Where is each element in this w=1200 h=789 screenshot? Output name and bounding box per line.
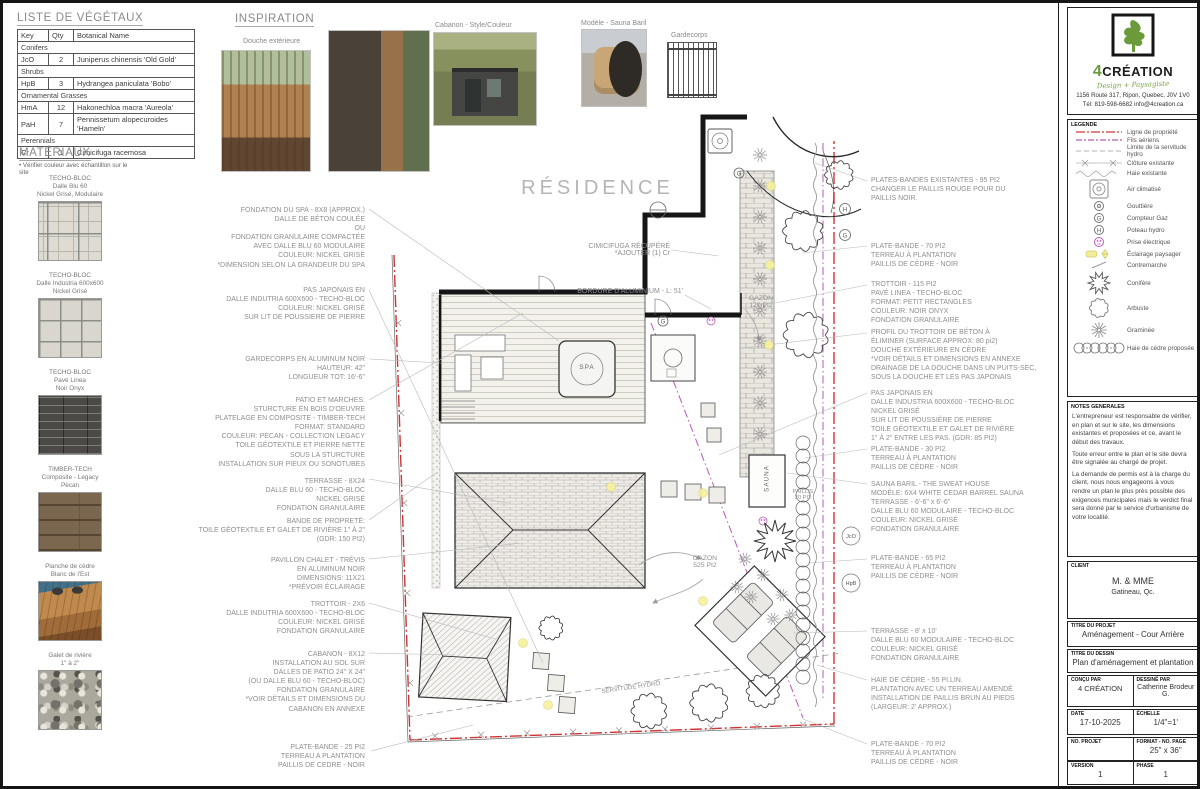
plant-list-table: Key Qty Botanical Name ConifersJcO2Junip…	[17, 29, 195, 159]
legend-label: Ligne de propriété	[1127, 129, 1178, 136]
project-no-cell: NO. PROJET	[1068, 738, 1133, 760]
grid600-swatch	[38, 298, 102, 358]
company-address-line: 1156 Route 317, Ripon, Quebec, J0V 1V0	[1068, 92, 1198, 101]
legend-item: Limite de la servitude hydro	[1068, 144, 1198, 158]
general-note: L'entrepreneur est responsable de vérifi…	[1072, 413, 1194, 448]
notes-list: L'entrepreneur est responsable de vérifi…	[1068, 413, 1198, 523]
svg-text:HpB: HpB	[846, 581, 857, 587]
residence-label: RÉSIDENCE	[515, 177, 680, 200]
drawn-by-value: Catherine Brodeur G.	[1134, 684, 1199, 698]
legend-item: Haie existante	[1068, 168, 1198, 178]
material-label: Galet de rivière 1" à 2"	[17, 652, 123, 668]
plant-group-row: Ornamental Grasses	[18, 90, 195, 102]
sauna-label: SAUNA	[764, 456, 771, 502]
legend-label: Haie existante	[1127, 170, 1167, 177]
legend-label: Conifère	[1127, 280, 1151, 287]
inspiration-title: INSPIRATION	[235, 13, 314, 27]
plant-list-title: LISTE DE VÉGÉTAUX	[17, 12, 143, 26]
drawn-by-label: DESSINÉ PAR	[1134, 676, 1199, 684]
legend-label: Limite de la servitude hydro	[1127, 144, 1195, 158]
drawn-by-cell: DESSINÉ PAR Catherine Brodeur G.	[1133, 676, 1199, 706]
plan-annotation-right: HAIE DE CÈDRE - 55 PI.LIN. PLANTATION AV…	[871, 676, 1059, 712]
legend-item: GCompteur Gaz	[1068, 212, 1198, 224]
svg-text:H: H	[1097, 228, 1101, 234]
linea-swatch	[38, 395, 102, 455]
legend-label: Fils aériens	[1127, 137, 1159, 144]
plan-annotation-left: BANDE DE PROPRETÉ: TOILE GÉOTEXTILE ET G…	[123, 517, 365, 544]
drawing-title-block: TITRE DU DESSIN Plan d'aménagement et pl…	[1067, 649, 1199, 673]
svg-text:G: G	[737, 172, 742, 178]
electrical-outlet-icon	[1071, 236, 1127, 248]
legend-item: Graminée	[1068, 320, 1198, 340]
col-key: Key	[18, 30, 49, 42]
scale-cell: ÉCHELLE 1/4"=1'	[1133, 710, 1199, 734]
client-city: Gatineau, Qc.	[1068, 589, 1198, 596]
company-block: 4CRÉATION Design + Paysagiste 1156 Route…	[1067, 7, 1199, 115]
plan-annotation-left: PATIO ET MARCHES: STURCTURE EN BOIS D'OE…	[123, 396, 365, 469]
plan-annotation-right: TERRASSE - 8' x 10' DALLE BLU 60 MODULAI…	[871, 627, 1059, 663]
legend-item: Conifère	[1068, 270, 1198, 296]
plant-row: HmA12Hakonechloa macra 'Aureola'	[18, 102, 195, 114]
client-label: CLIENT	[1068, 562, 1198, 570]
shed-illustration	[452, 68, 517, 116]
inspiration-image-railing	[667, 42, 717, 98]
notes-block: NOTES GENERALES L'entrepreneur est respo…	[1067, 401, 1199, 557]
legend-title: LEGENDE	[1068, 120, 1198, 128]
plan-annotation-right: SAUNA BARIL - THE SWEAT HOUSE MODÈLE: 6X…	[871, 480, 1059, 535]
project-title-block: TITRE DU PROJET Aménagement - Cour Arriè…	[1067, 621, 1199, 647]
hydro-pole-icon: H	[1071, 224, 1127, 236]
legend-item: Clôture existante	[1068, 158, 1198, 168]
inspiration-photo-sauna	[581, 29, 647, 107]
plan-annotation-right: PLATE-BANDE - 70 PI2 TERREAU À PLANTATIO…	[871, 740, 1059, 767]
materials-list: TECHO-BLOC Dalle Blu 60 Nickel Grisé, Mo…	[17, 175, 123, 741]
scale-label: ÉCHELLE	[1134, 710, 1199, 718]
mulch-label: PAILLIS 20 PI2	[783, 489, 823, 501]
company-address: 1156 Route 317, Ripon, Quebec, J0V 1V0 T…	[1068, 92, 1198, 109]
date-value: 17-10-2025	[1068, 718, 1133, 727]
material-label: TIMBER-TECH Composite - Legacy Pecan	[17, 466, 123, 490]
drawing-sheet: GG HG JcOHpB LISTE DE VÉGÉTAUX Key Qty	[0, 0, 1200, 789]
plant-table-header: Key Qty Botanical Name	[18, 30, 195, 42]
tree-icon	[1124, 20, 1145, 52]
plan-annotation-right: PLATES-BANDES EXISTANTES - 95 PI2 CHANGE…	[871, 176, 1059, 203]
modular-swatch	[38, 201, 102, 261]
general-note: La demande de permis est à la charge du …	[1072, 471, 1194, 523]
plan-annotation-right: PAS JAPONAIS EN DALLE INDUSTRIA 600X600 …	[871, 389, 1059, 444]
barrel-sauna-face	[609, 41, 642, 97]
cedar-swatch	[38, 581, 102, 641]
projectno-format-block: NO. PROJET FORMAT - NO. PAGE 25" x 36"	[1067, 737, 1199, 761]
material-label: TECHO-BLOC Dalle Blu 60 Nickel Grisé, Mo…	[17, 175, 123, 199]
designed-by-value: 4 CRÉATION	[1068, 684, 1133, 693]
legend-label: Air climatisé	[1127, 186, 1161, 193]
plan-annotation-left: PLATE-BANDE - 25 PI2 TERREAU A PLANTATIO…	[123, 743, 365, 770]
legend-label: Éclairage paysager	[1127, 251, 1181, 258]
legend-item: Fils aériens	[1068, 136, 1198, 144]
format-cell: FORMAT - NO. PAGE 25" x 36"	[1133, 738, 1199, 760]
designed-by-label: CONÇU PAR	[1068, 676, 1133, 684]
client-block: CLIENT M. & MME Gatineau, Qc.	[1067, 561, 1199, 619]
plan-annotation-left: PAVILLON CHALET - TRÉVIS EN ALUMINUM NOI…	[123, 556, 365, 592]
stair-riser-icon	[1071, 260, 1127, 270]
legend-label: Haie de cèdre proposée	[1127, 345, 1194, 352]
landscape-light-icon	[1071, 248, 1127, 260]
spa-label: SPA	[569, 364, 605, 371]
materials-note: • Vérifier couleur avec échantillon sur …	[19, 162, 129, 176]
plant-row: JcO2Juniperus chinensis 'Old Gold'	[18, 54, 195, 66]
inspiration-photo-shower-2	[328, 30, 430, 172]
version-label: VERSION	[1068, 762, 1133, 770]
proposed-cedar-hedge-icon	[1071, 340, 1127, 356]
lawn-small-label: GAZON 120 PI2	[738, 295, 784, 309]
cimicifuga-note: CIMICIFUGA RÉCUPÉRÉ *AJOUTER (1) Cr	[508, 243, 670, 257]
company-name: 4CRÉATION	[1068, 63, 1198, 81]
plan-annotation-right: PLATE-BANDE - 70 PI2 TERREAU À PLANTATIO…	[871, 242, 1059, 269]
inspiration-label-shed: Cabanon - Style/Couleur	[435, 22, 512, 29]
ornamental-grass-icon	[1071, 320, 1127, 340]
materials-title: MATÉRIAUX	[19, 147, 91, 161]
legend-item: Ligne de propriété	[1068, 128, 1198, 136]
col-qty: Qty	[49, 30, 74, 42]
company-contact-line: Tél: 819-598-6682 info@4creation.ca	[1068, 101, 1198, 110]
svg-text:G: G	[661, 320, 666, 326]
plant-group-row: Perennials	[18, 135, 195, 147]
plant-row: HpB3Hydrangea paniculata 'Bobo'	[18, 78, 195, 90]
legend-item: Haie de cèdre proposée	[1068, 340, 1198, 356]
plant-row: PaH7Pennissetum alopecuroides 'Hameln'	[18, 114, 195, 135]
project-title-value: Aménagement - Cour Arrière	[1068, 630, 1198, 639]
plan-annotation-left: PAS JAPONAIS EN DALLE INDUTRIA 600X600 -…	[123, 286, 365, 322]
inspiration-label-shower: Douche extérieure	[243, 38, 300, 45]
inspiration-photo-shower-1	[221, 50, 311, 172]
company-name-text: CRÉATION	[1102, 64, 1173, 79]
phase-cell: PHASE 1	[1133, 762, 1199, 784]
format-value: 25" x 36"	[1134, 746, 1199, 755]
conifer-icon	[1071, 270, 1127, 296]
material-item: TECHO-BLOC Dalle Industria 600x600 Nicke…	[17, 272, 123, 358]
svg-text:H: H	[843, 208, 847, 214]
material-item: TECHO-BLOC Dalle Blu 60 Nickel Grisé, Mo…	[17, 175, 123, 261]
plan-annotation-left: TERRASSE - 8X24 DALLE BLU 60 - TECHO-BLO…	[123, 477, 365, 513]
drawing-title-label: TITRE DU DESSIN	[1068, 650, 1198, 658]
designed-by-cell: CONÇU PAR 4 CRÉATION	[1068, 676, 1133, 706]
material-label: TECHO-BLOC Dalle Industria 600x600 Nicke…	[17, 272, 123, 296]
material-label: TECHO-BLOC Pavé Linea Noir Onyx	[17, 369, 123, 393]
material-item: Galet de rivière 1" à 2"	[17, 652, 123, 730]
plan-annotation-right: PROFIL DU TROTTOIR DE BÉTON À ÉLIMINER (…	[871, 328, 1059, 383]
shed-window	[487, 79, 501, 97]
client-name: M. & MME	[1068, 576, 1198, 586]
legend-label: Prise électrique	[1127, 239, 1170, 246]
col-name: Botanical Name	[74, 30, 195, 42]
company-logo-icon	[1110, 12, 1156, 58]
property-line-icon	[1071, 128, 1127, 136]
legend-item: Éclairage paysager	[1068, 248, 1198, 260]
company-number: 4	[1093, 63, 1102, 80]
svg-text:G: G	[1097, 216, 1102, 222]
legend-label: Arbuste	[1127, 305, 1149, 312]
date-scale-block: DATE 17-10-2025 ÉCHELLE 1/4"=1'	[1067, 709, 1199, 735]
plant-group-row: Conifers	[18, 42, 195, 54]
legend-label: Compteur Gaz	[1127, 215, 1168, 222]
legend-block: LEGENDE Ligne de propriétéFils aériensLi…	[1067, 119, 1199, 397]
version-cell: VERSION 1	[1068, 762, 1133, 784]
project-title-label: TITRE DU PROJET	[1068, 622, 1198, 630]
svg-text:JcO: JcO	[846, 534, 857, 540]
drawing-title-value: Plan d'aménagement et plantation	[1068, 658, 1198, 667]
legend-item: Prise électrique	[1068, 236, 1198, 248]
plan-annotation-right: PLATE-BANDE - 30 PI2 TERREAU À PLANTATIO…	[871, 445, 1059, 472]
existing-hedge-icon	[1071, 168, 1127, 178]
legend-item: HPoteau hydro	[1068, 224, 1198, 236]
date-cell: DATE 17-10-2025	[1068, 710, 1133, 734]
legend-label: Contremarche	[1127, 262, 1167, 269]
gas-meter-icon: G	[1071, 212, 1127, 224]
format-label: FORMAT - NO. PAGE	[1134, 738, 1199, 746]
timber-swatch	[38, 492, 102, 552]
plan-annotation-right: PLATE-BANDE - 65 PI2 TERREAU À PLANTATIO…	[871, 554, 1059, 581]
legend-label: Poteau hydro	[1127, 227, 1164, 234]
legend-item: Contremarche	[1068, 260, 1198, 270]
inspiration-photo-shed	[433, 32, 537, 126]
project-no-label: NO. PROJET	[1068, 738, 1133, 746]
inspiration-label-sauna: Modèle - Sauna Baril	[581, 20, 646, 27]
hydro-easement-icon	[1071, 147, 1127, 155]
ac-unit-icon	[1071, 178, 1127, 200]
material-item: Planche de cèdre Blanc de l'Est	[17, 563, 123, 641]
inspiration-label-railing: Gardecorps	[671, 32, 708, 39]
legend-label: Clôture existante	[1127, 160, 1174, 167]
legend-list: Ligne de propriétéFils aériensLimite de …	[1068, 128, 1198, 356]
material-item: TECHO-BLOC Pavé Linea Noir Onyx	[17, 369, 123, 455]
legend-label: Graminée	[1127, 327, 1155, 334]
shrub-icon	[1071, 296, 1127, 320]
plan-annotation-left: GARDECORPS EN ALUMINUM NOIR HAUTEUR: 42"…	[123, 355, 365, 382]
version-value: 1	[1068, 770, 1133, 779]
notes-title: NOTES GENERALES	[1068, 402, 1198, 410]
gutter-icon	[1071, 200, 1127, 212]
plan-annotation-left: CABANON - 8X12 INSTALLATION AU SOL SUR D…	[123, 650, 365, 714]
phase-value: 1	[1134, 770, 1199, 779]
overhead-wires-icon	[1071, 136, 1127, 144]
designers-block: CONÇU PAR 4 CRÉATION DESSINÉ PAR Catheri…	[1067, 675, 1199, 707]
plan-annotation-left: FONDATION DU SPA - 8X8 (APPROX.) DALLE D…	[123, 206, 365, 270]
scale-value: 1/4"=1'	[1134, 718, 1199, 727]
railing-frame	[668, 48, 716, 95]
version-phase-block: VERSION 1 PHASE 1	[1067, 761, 1199, 785]
aluminum-edge-note: BORDURE D'ALUMINIUM - L: 51'	[483, 288, 683, 295]
shed-door	[465, 79, 481, 112]
material-item: TIMBER-TECH Composite - Legacy Pecan	[17, 466, 123, 552]
date-label: DATE	[1068, 710, 1133, 718]
legend-label: Gouttière	[1127, 203, 1153, 210]
plant-group-row: Shrubs	[18, 66, 195, 78]
general-note: Toute erreur entre le plan et le site de…	[1072, 451, 1194, 468]
residence-walls	[439, 117, 747, 315]
material-label: Planche de cèdre Blanc de l'Est	[17, 563, 123, 579]
plan-annotation-right: TROTTOIR - 115 PI2 PAVÉ LINEA - TECHO-BL…	[871, 280, 1059, 325]
lawn-large-label: GAZON 525 PI2	[679, 555, 731, 569]
legend-item: Arbuste	[1068, 296, 1198, 320]
existing-fence-icon	[1071, 158, 1127, 168]
phase-label: PHASE	[1134, 762, 1199, 770]
legend-item: Gouttière	[1068, 200, 1198, 212]
rock-swatch	[38, 670, 102, 730]
plan-annotation-left: TROTTOIR - 2X6 DALLE INDUTRIA 600X600 - …	[123, 600, 365, 636]
svg-text:G: G	[843, 234, 848, 240]
legend-item: Air climatisé	[1068, 178, 1198, 200]
